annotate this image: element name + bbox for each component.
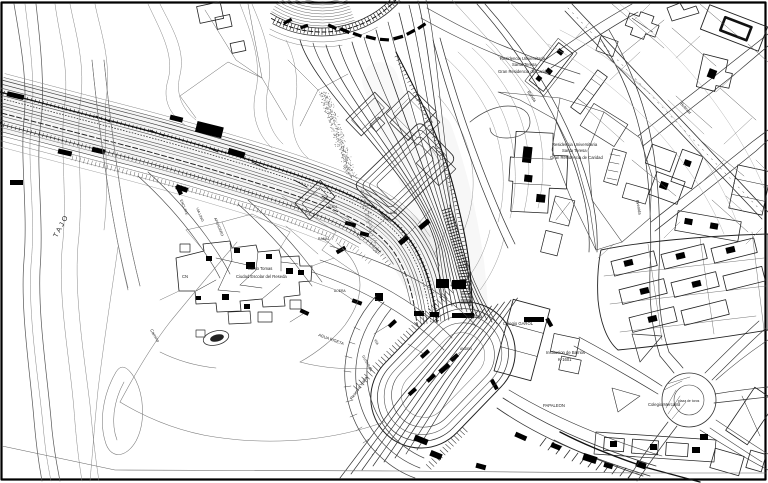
svg-text:Santa Teresa: Santa Teresa bbox=[562, 148, 587, 153]
svg-text:Institucion de Barrios: Institucion de Barrios bbox=[546, 350, 585, 355]
svg-text:ACERA: ACERA bbox=[334, 289, 346, 293]
svg-text:Gran Residencia de Caridad: Gran Residencia de Caridad bbox=[550, 155, 604, 160]
svg-text:V-30: V-30 bbox=[390, 211, 397, 215]
svg-text:N-401: N-401 bbox=[328, 205, 337, 209]
svg-text:Santa Teresa: Santa Teresa bbox=[512, 62, 537, 67]
svg-text:PAPALEON: PAPALEON bbox=[543, 403, 565, 408]
svg-text:RAMAL: RAMAL bbox=[318, 237, 330, 241]
svg-text:CN: CN bbox=[182, 274, 188, 279]
svg-text:Santo Tomas: Santo Tomas bbox=[248, 266, 272, 271]
svg-text:Colegio Mercantil: Colegio Mercantil bbox=[648, 402, 680, 407]
svg-text:Colegio GAROL: Colegio GAROL bbox=[503, 321, 534, 326]
svg-text:ANDEN: ANDEN bbox=[460, 347, 472, 351]
svg-text:plaza de toros: plaza de toros bbox=[678, 399, 700, 403]
svg-text:K-1601: K-1601 bbox=[558, 357, 572, 362]
svg-text:Residencia Universitaria: Residencia Universitaria bbox=[500, 56, 546, 61]
svg-text:Residencia Universitaria: Residencia Universitaria bbox=[552, 142, 598, 147]
svg-text:Gran Residencia de Caridad: Gran Residencia de Caridad bbox=[498, 69, 552, 74]
svg-text:Ciudad Escolar del Reseda: Ciudad Escolar del Reseda bbox=[236, 274, 287, 279]
svg-text:RIGETA: RIGETA bbox=[466, 314, 481, 319]
